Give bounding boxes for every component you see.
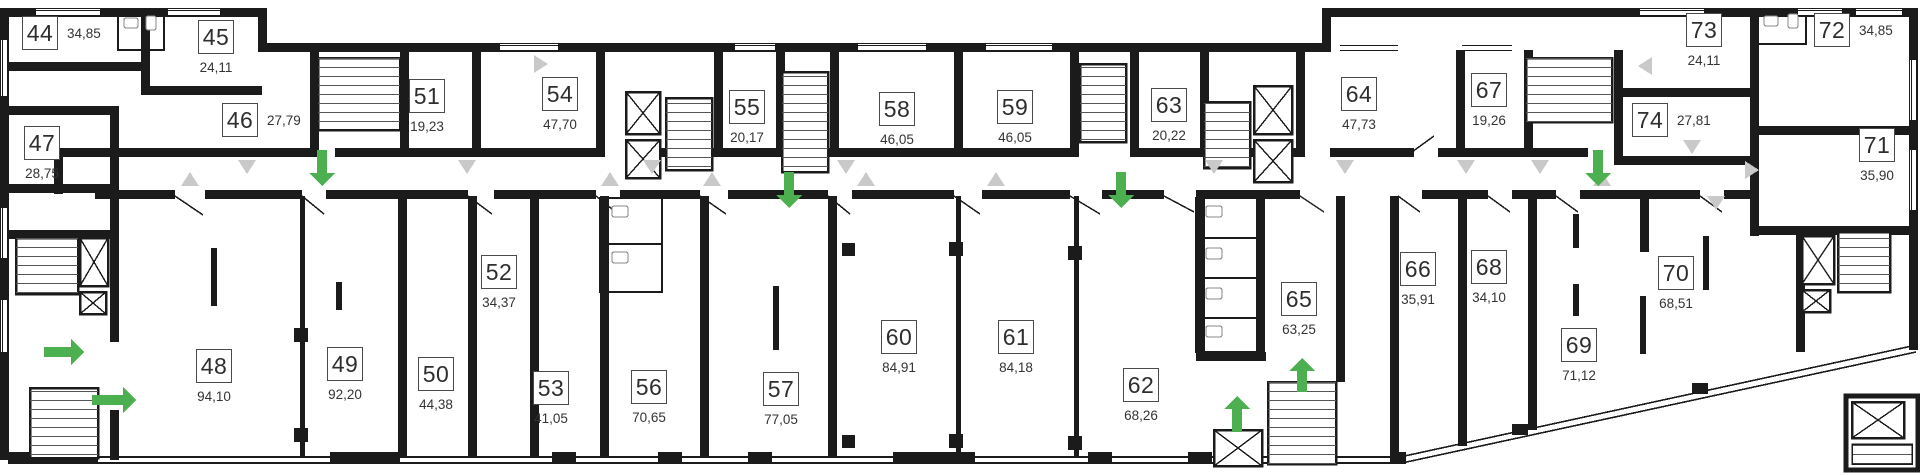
unit-number: 63	[1151, 88, 1187, 122]
unit-area: 34,10	[1472, 290, 1506, 305]
door-swing-icon	[1638, 57, 1652, 75]
elevator-icon	[1802, 290, 1830, 312]
unit-number: 48	[196, 349, 232, 383]
unit-number: 59	[997, 90, 1033, 124]
unit-label-49[interactable]: 49 92,20	[327, 347, 363, 402]
unit-label-46[interactable]: 46 27,79	[222, 103, 301, 137]
entrance-arrow-right-icon	[44, 339, 84, 365]
window	[986, 44, 1052, 51]
unit-number: 47	[24, 126, 60, 160]
unit-label-73[interactable]: 73 24,11	[1686, 13, 1722, 68]
door-swing-icon	[534, 55, 548, 73]
door-swing-icon	[181, 172, 199, 186]
elevator-icon	[1852, 402, 1904, 438]
toilet-icon	[612, 252, 628, 263]
unit-area: 34,85	[1859, 23, 1893, 38]
unit-area: 20,22	[1152, 128, 1186, 143]
unit-label-60[interactable]: 60 84,91	[881, 320, 917, 375]
window	[1910, 60, 1917, 120]
door-swing-icon	[238, 160, 256, 174]
unit-area: 34,85	[67, 26, 101, 41]
staircase-icon	[318, 58, 400, 130]
unit-number: 50	[418, 357, 454, 391]
unit-number: 57	[763, 372, 799, 406]
staircase-icon	[666, 98, 712, 170]
unit-number: 51	[409, 79, 445, 113]
sink-icon	[146, 16, 156, 30]
unit-number: 52	[481, 255, 517, 289]
unit-area: 34,37	[482, 295, 516, 310]
unit-area: 70,65	[632, 410, 666, 425]
staircase-icon	[16, 238, 78, 294]
unit-area: 47,73	[1342, 117, 1376, 132]
elevator-icon	[626, 140, 660, 178]
unit-label-47[interactable]: 47 28,75	[24, 126, 60, 181]
door-swing-icon	[601, 172, 619, 186]
window	[36, 9, 100, 16]
unit-area: 19,26	[1472, 113, 1506, 128]
door-swing-icon	[703, 172, 721, 186]
unit-label-57[interactable]: 57 77,05	[763, 372, 799, 427]
unit-area: 27,81	[1677, 113, 1711, 128]
sink-icon	[1206, 326, 1222, 337]
unit-number: 62	[1123, 368, 1159, 402]
door-swing-icon	[458, 160, 476, 174]
door-swing-icon	[1457, 160, 1475, 174]
unit-label-67[interactable]: 67 19,26	[1471, 73, 1507, 128]
elevator-icon	[80, 238, 108, 286]
unit-area: 20,17	[730, 130, 764, 145]
unit-label-66[interactable]: 66 35,91	[1400, 252, 1436, 307]
window	[1, 300, 8, 352]
window	[168, 9, 220, 16]
unit-area: 35,91	[1401, 292, 1435, 307]
sink-icon	[1206, 248, 1222, 259]
unit-area: 63,25	[1282, 322, 1316, 337]
unit-area: 41,05	[534, 411, 568, 426]
floor-plan: 44 34,85 45 24,11 46 27,79 47 28,75 48 9…	[0, 0, 1920, 475]
elevator-icon	[80, 292, 106, 314]
unit-area: 94,10	[197, 389, 231, 404]
elevator-icon	[1214, 430, 1262, 466]
unit-label-59[interactable]: 59 46,05	[997, 90, 1033, 145]
unit-label-62[interactable]: 62 68,26	[1123, 368, 1159, 423]
toilet-icon	[1206, 206, 1222, 217]
sink-icon	[1788, 14, 1798, 28]
unit-label-54[interactable]: 54 47,70	[542, 77, 578, 132]
unit-number: 49	[327, 347, 363, 381]
unit-number: 69	[1561, 328, 1597, 362]
unit-area: 35,90	[1860, 168, 1894, 183]
unit-number: 58	[879, 92, 915, 126]
unit-label-70[interactable]: 70 68,51	[1658, 256, 1694, 311]
unit-area: 46,05	[880, 132, 914, 147]
unit-area: 47,70	[543, 117, 577, 132]
unit-label-58[interactable]: 58 46,05	[879, 92, 915, 147]
unit-area: 71,12	[1562, 368, 1596, 383]
window	[1462, 44, 1512, 51]
unit-label-56[interactable]: 56 70,65	[631, 370, 667, 425]
toilet-icon	[1206, 288, 1222, 299]
unit-number: 60	[881, 320, 917, 354]
unit-area: 24,11	[200, 60, 233, 75]
staircase-icon	[1080, 64, 1126, 142]
staircase-icon	[1838, 232, 1890, 292]
unit-number: 72	[1814, 13, 1850, 47]
unit-area: 28,75	[25, 166, 59, 181]
unit-label-48[interactable]: 48 94,10	[196, 349, 232, 404]
top-band-dividers	[310, 50, 1623, 165]
unit-label-44[interactable]: 44 34,85	[22, 16, 101, 50]
unit-area: 27,79	[267, 113, 301, 128]
unit-label-68[interactable]: 68 34,10	[1471, 250, 1507, 305]
unit-number: 54	[542, 77, 578, 111]
unit-area: 24,11	[1688, 53, 1721, 68]
unit-number: 74	[1632, 103, 1668, 137]
toilet-icon	[124, 18, 138, 28]
staircase-icon	[782, 72, 828, 172]
door-swing-icon	[837, 160, 855, 174]
window	[1910, 150, 1917, 210]
unit-label-51[interactable]: 51 19,23	[409, 79, 445, 134]
elevators	[80, 86, 1904, 466]
corridor-bottom-wall	[95, 190, 1754, 199]
unit-area: 44,38	[419, 397, 453, 412]
window	[500, 44, 558, 51]
unit-label-72[interactable]: 72 34,85	[1814, 13, 1893, 47]
door-swing-icon	[1336, 160, 1354, 174]
unit-label-74[interactable]: 74 27,81	[1632, 103, 1711, 137]
unit-label-50[interactable]: 50 44,38	[418, 357, 454, 412]
unit-number: 70	[1658, 256, 1694, 290]
toilet-icon	[1764, 16, 1778, 26]
bottom-band-dividers	[8, 190, 1649, 460]
unit-number: 64	[1341, 77, 1377, 111]
elevator-icon	[626, 92, 660, 134]
window	[1, 40, 8, 96]
unit-number: 71	[1859, 128, 1895, 162]
unit-number: 68	[1471, 250, 1507, 284]
elevator-icon	[1254, 86, 1292, 134]
door-swing-icon	[857, 172, 875, 186]
floor-plan-drawing	[0, 0, 1920, 475]
door-swing-icon	[1531, 160, 1549, 174]
unit-number: 44	[22, 16, 58, 50]
unit-number: 61	[998, 320, 1034, 354]
staircase-icon	[1204, 102, 1250, 168]
unit-number: 46	[222, 103, 258, 137]
unit-label-55[interactable]: 55 20,17	[729, 90, 765, 145]
unit-label-63[interactable]: 63 20,22	[1151, 88, 1187, 143]
unit-number: 73	[1686, 13, 1722, 47]
entrance-arrow-up-icon	[1224, 396, 1250, 432]
unit-number: 55	[729, 90, 765, 124]
unit-number: 56	[631, 370, 667, 404]
staircase-icon	[1268, 382, 1336, 464]
unit-number: 65	[1281, 282, 1317, 316]
staircase-icon	[30, 388, 98, 458]
window	[1340, 44, 1398, 51]
unit-area: 92,20	[328, 387, 362, 402]
unit-number: 66	[1400, 252, 1436, 286]
elevator-icon	[1254, 140, 1292, 182]
unit-area: 68,51	[1659, 296, 1693, 311]
unit-area: 46,05	[998, 130, 1032, 145]
unit-area: 19,23	[410, 119, 444, 134]
unit-label-45[interactable]: 45 24,11	[198, 20, 234, 75]
door-swing-icon	[987, 172, 1005, 186]
window	[858, 44, 926, 51]
unit-area: 84,18	[999, 360, 1033, 375]
door-swing-icon	[1683, 140, 1701, 154]
unit-label-71[interactable]: 71 35,90	[1859, 128, 1895, 183]
unit-label-61[interactable]: 61 84,18	[998, 320, 1034, 375]
staircase-icon	[1526, 58, 1612, 122]
unit-area: 77,05	[764, 412, 798, 427]
elevator-icon	[1802, 236, 1834, 284]
unit-number: 53	[533, 371, 569, 405]
unit-label-64[interactable]: 64 47,73	[1341, 77, 1377, 132]
window	[735, 44, 775, 51]
toilet-icon	[612, 206, 628, 217]
unit-label-53[interactable]: 53 41,05	[533, 371, 569, 426]
unit-label-69[interactable]: 69 71,12	[1561, 328, 1597, 383]
window	[1, 208, 8, 258]
unit-label-52[interactable]: 52 34,37	[481, 255, 517, 310]
unit-area: 84,91	[882, 360, 916, 375]
unit-number: 67	[1471, 73, 1507, 107]
unit-number: 45	[198, 20, 234, 54]
unit-label-65[interactable]: 65 63,25	[1281, 282, 1317, 337]
unit-area: 68,26	[1124, 408, 1158, 423]
